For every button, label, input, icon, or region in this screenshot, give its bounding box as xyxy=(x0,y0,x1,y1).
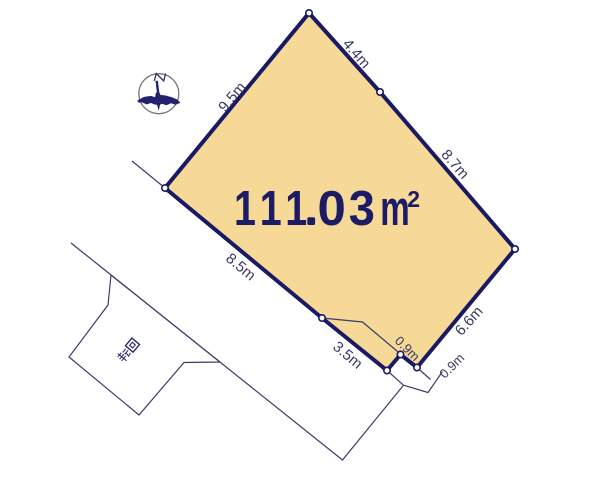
svg-text:0.9m: 0.9m xyxy=(436,350,467,381)
svg-text:3: 3 xyxy=(349,182,375,236)
svg-text:m: m xyxy=(380,180,409,235)
svg-text:0: 0 xyxy=(318,181,346,236)
svg-text:1: 1 xyxy=(285,182,307,236)
svg-text:1: 1 xyxy=(260,182,282,236)
svg-text:1: 1 xyxy=(234,182,256,236)
svg-text:2: 2 xyxy=(407,186,420,212)
